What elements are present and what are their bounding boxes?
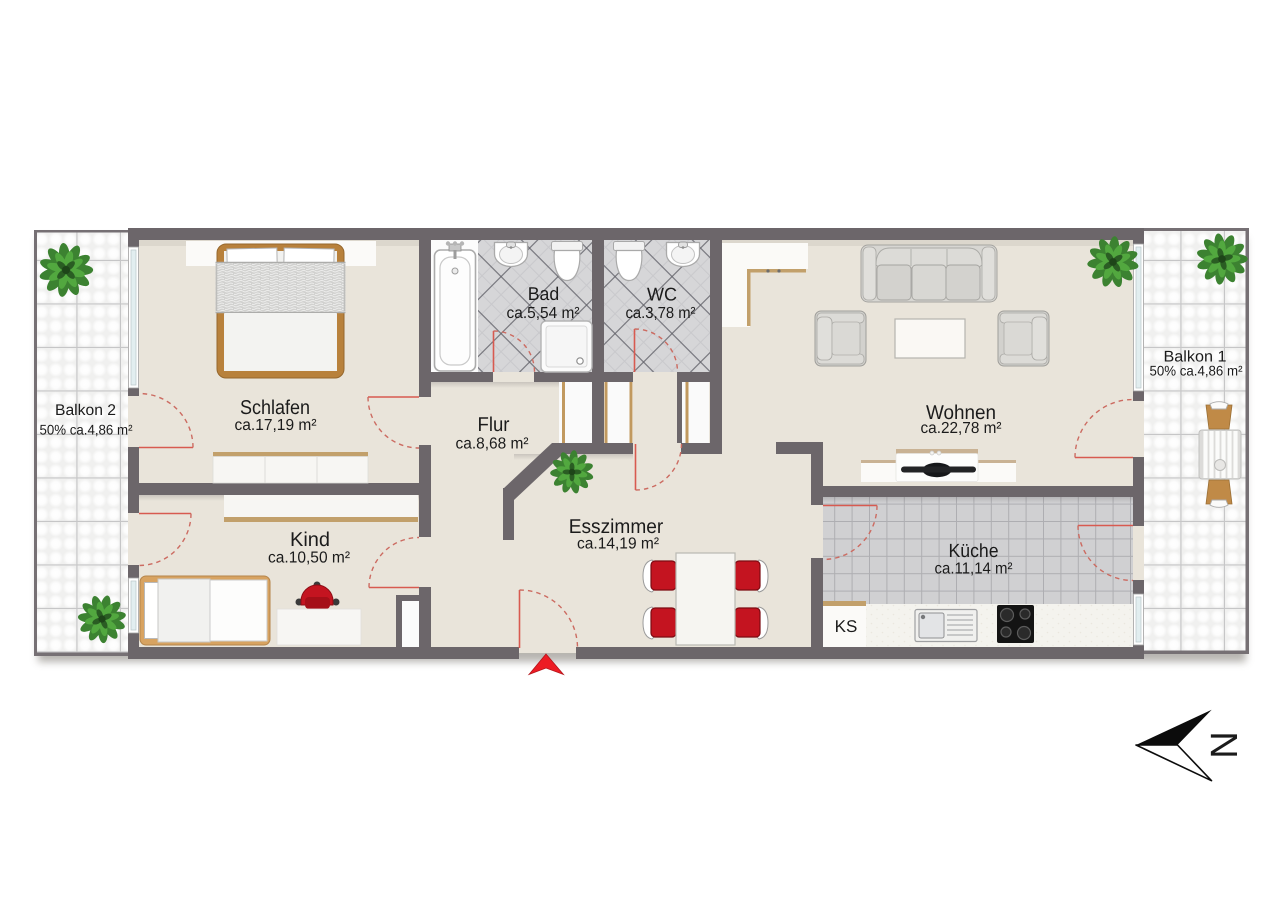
svg-text:ca.14,19 m²: ca.14,19 m² [577,536,660,553]
svg-text:50% ca.4,86 m²: 50% ca.4,86 m² [40,422,133,438]
svg-text:ca.22,78 m²: ca.22,78 m² [921,420,1003,437]
svg-text:ca.5,54 m²: ca.5,54 m² [507,305,581,322]
svg-text:N: N [1204,731,1246,758]
svg-text:ca.10,50 m²: ca.10,50 m² [268,550,351,567]
svg-text:WC: WC [647,284,677,305]
svg-text:ca.17,19 m²: ca.17,19 m² [235,417,318,434]
svg-text:ca.11,14 m²: ca.11,14 m² [935,561,1014,578]
svg-text:Balkon 2: Balkon 2 [55,402,116,419]
svg-text:Flur: Flur [478,414,510,436]
svg-text:ca.8,68 m²: ca.8,68 m² [456,436,530,453]
svg-text:Kind: Kind [290,529,330,551]
svg-text:Schlafen: Schlafen [240,397,310,419]
svg-text:Küche: Küche [949,541,999,562]
svg-text:KS: KS [835,617,858,636]
svg-text:Bad: Bad [528,283,560,304]
svg-text:ca.3,78 m²: ca.3,78 m² [626,305,697,322]
svg-text:50% ca.4,86 m²: 50% ca.4,86 m² [1150,363,1243,379]
